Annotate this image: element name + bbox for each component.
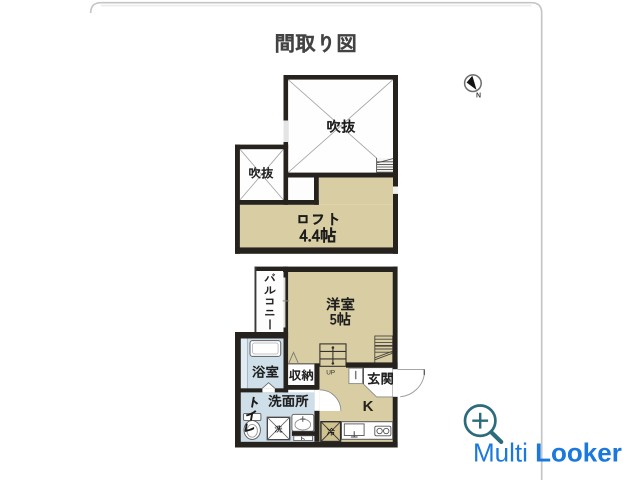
svg-text:UP: UP <box>326 369 335 376</box>
svg-text:Multi Looker: Multi Looker <box>473 438 622 468</box>
svg-text:N: N <box>476 93 481 100</box>
svg-text:K: K <box>363 398 374 415</box>
